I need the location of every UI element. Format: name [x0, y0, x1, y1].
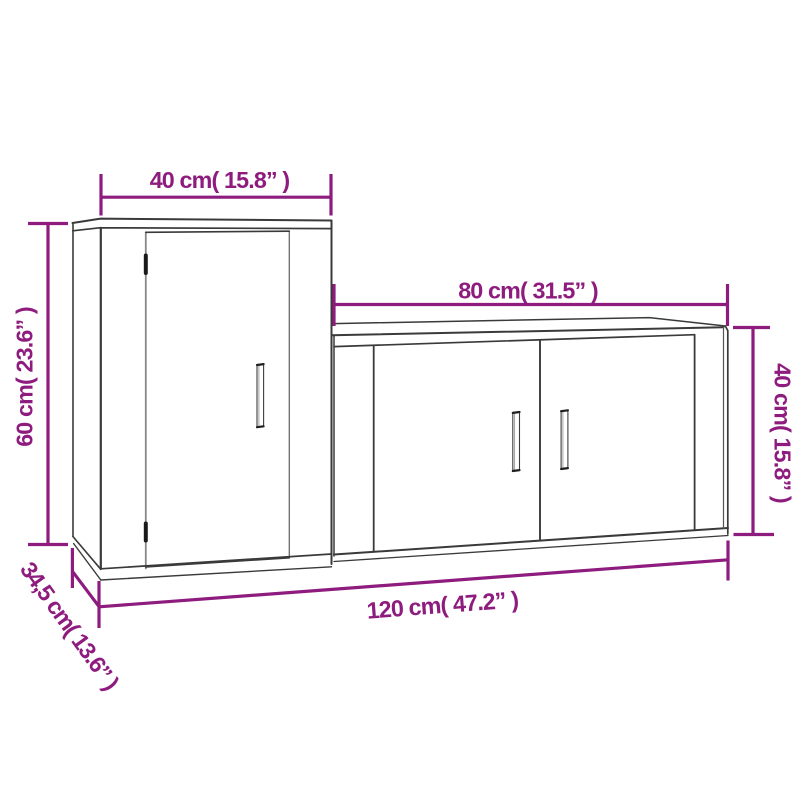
- svg-text:60 cm( 23.6” ): 60 cm( 23.6” ): [11, 307, 37, 447]
- svg-text:40 cm( 15.8” ): 40 cm( 15.8” ): [769, 363, 795, 503]
- svg-text:80 cm( 31.5” ): 80 cm( 31.5” ): [458, 278, 598, 304]
- svg-text:40 cm( 15.8” ): 40 cm( 15.8” ): [150, 167, 290, 193]
